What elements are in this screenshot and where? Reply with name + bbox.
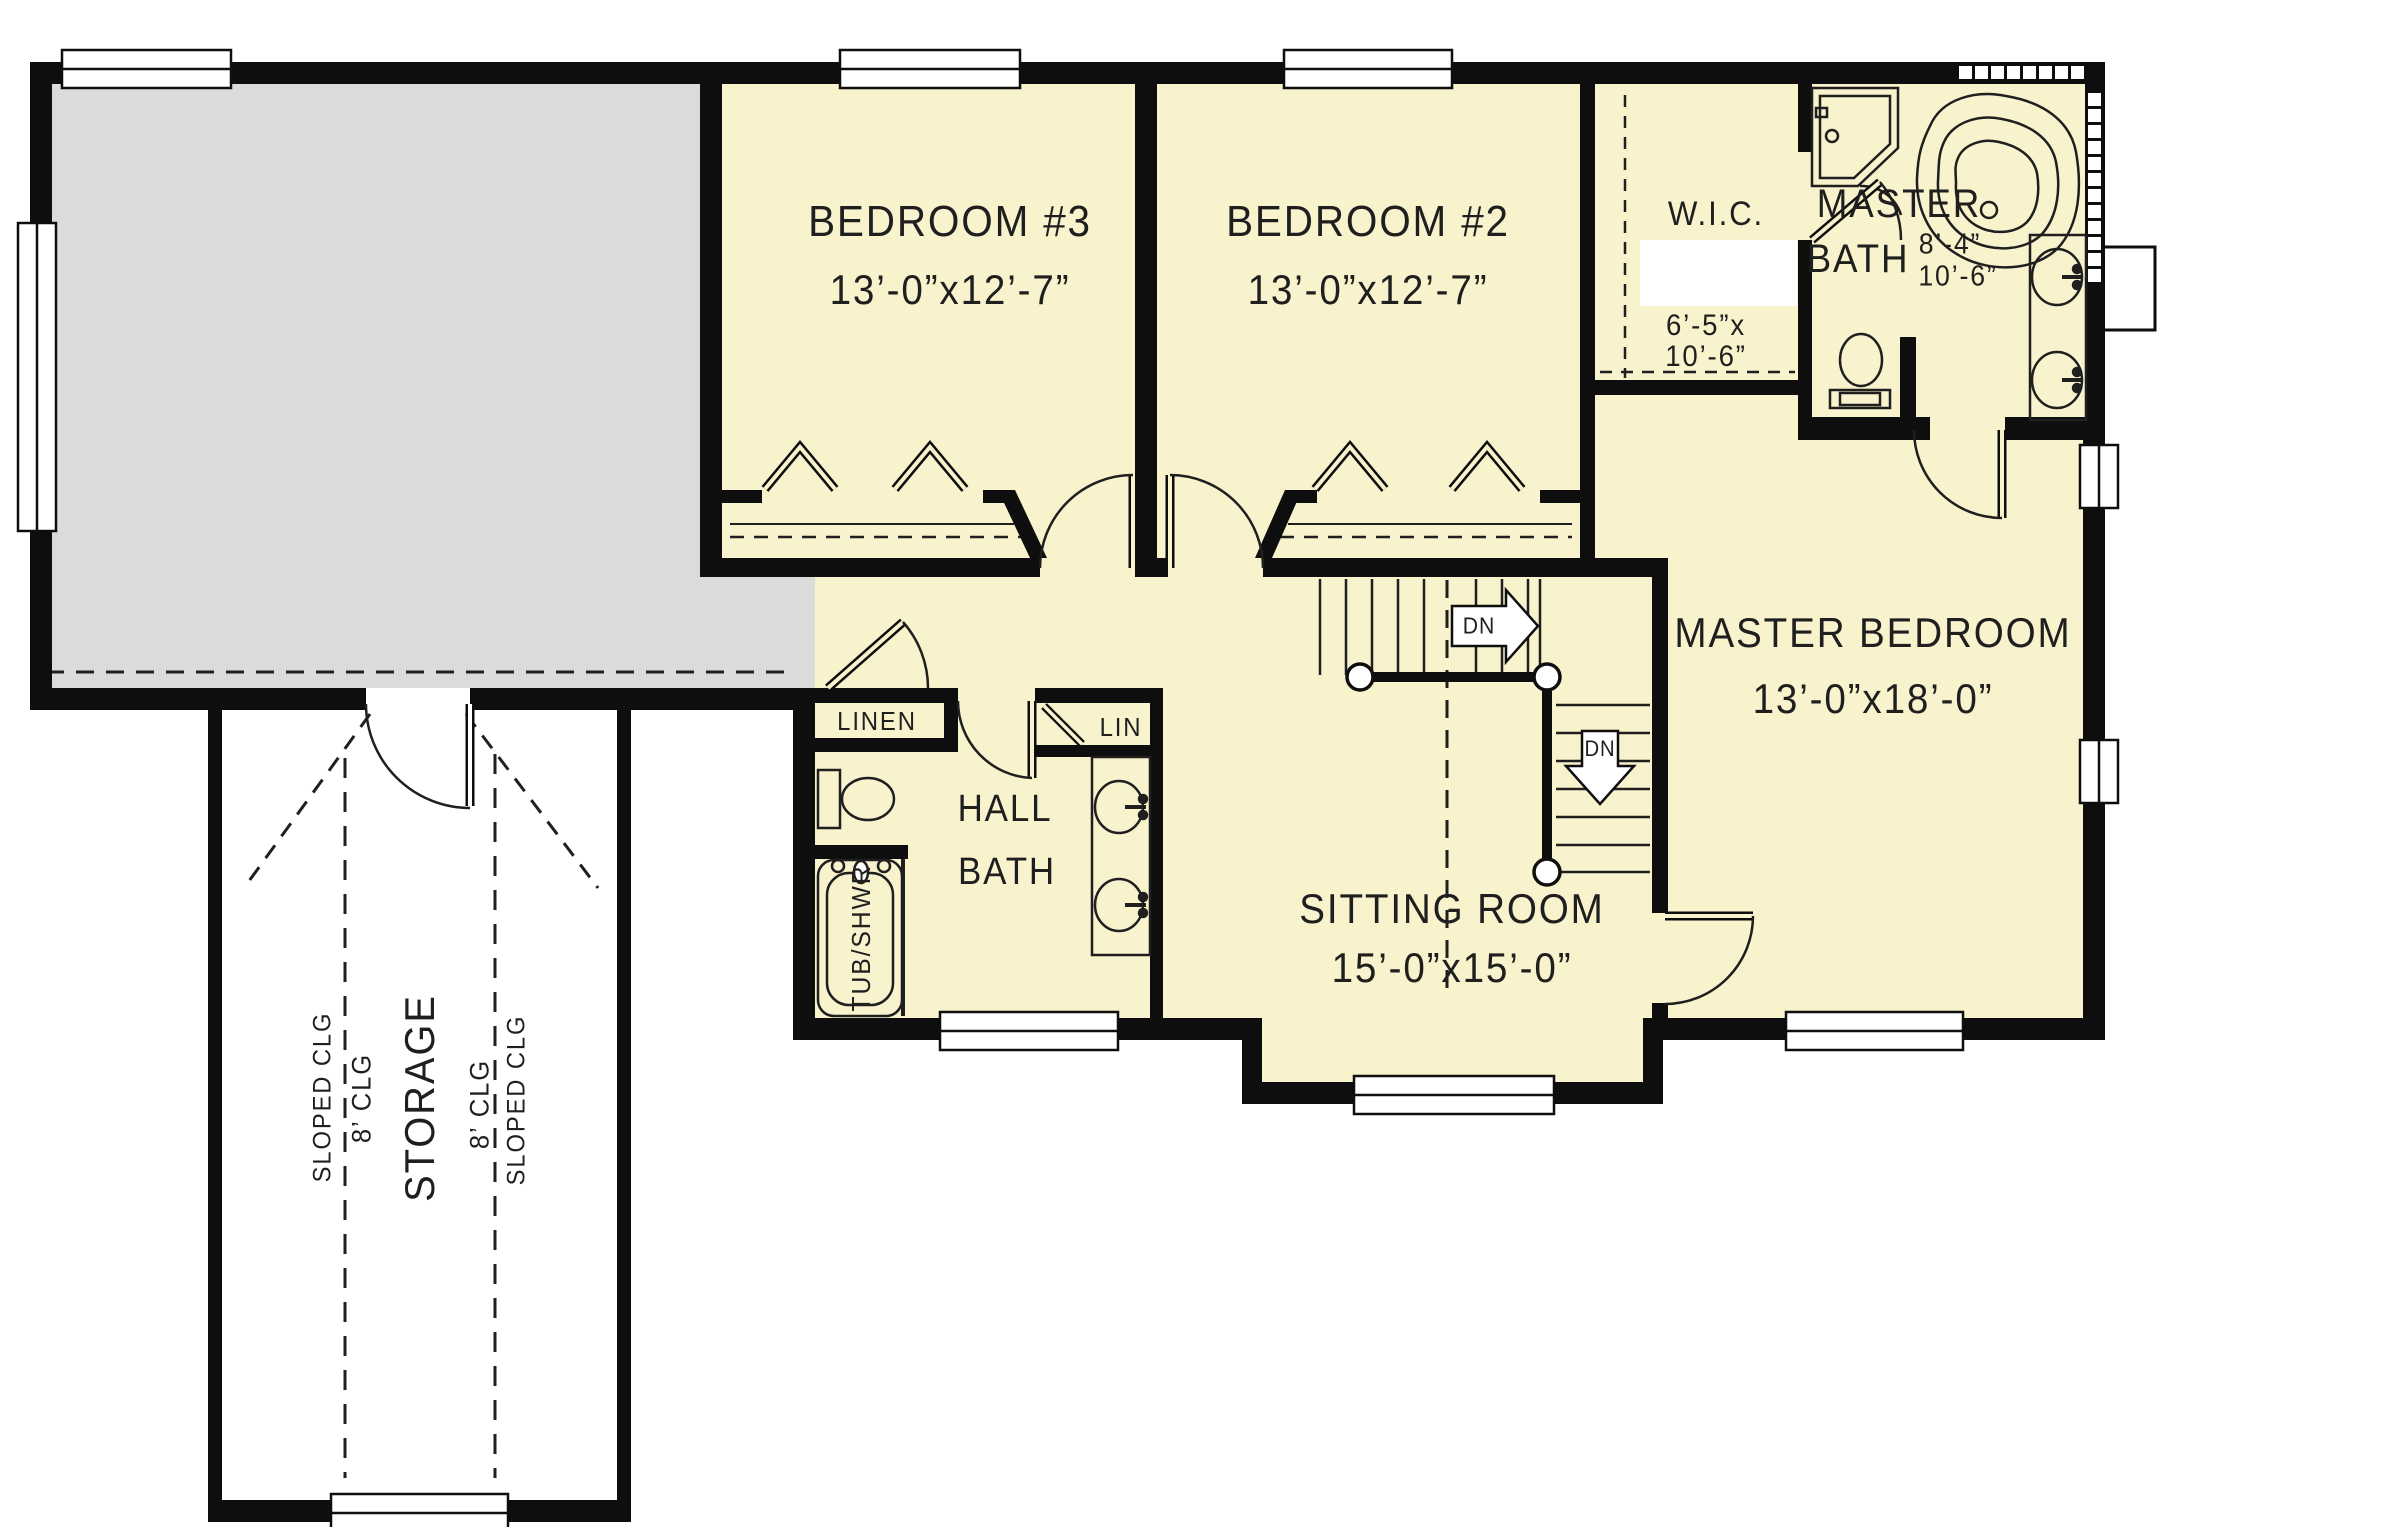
- wall-lin-top: [1035, 688, 1160, 703]
- label-sitting-name: SITTING ROOM: [1299, 888, 1604, 930]
- floorplan-drawing: [0, 0, 2400, 1527]
- wall-bedrooms-bottom-1: [700, 558, 1040, 577]
- label-masterbath-name2: BATH: [1807, 239, 1910, 279]
- wall-closet2-front-right: [1540, 490, 1580, 503]
- label-masterbath-name1: MASTER: [1817, 184, 1981, 224]
- label-tub-shwr: TUB/SHWR: [848, 865, 874, 1012]
- label-masterbath-dims2: 10’-6”: [1918, 263, 1997, 292]
- floor-plan: BEDROOM #3 13’-0”x12’-7” BEDROOM #2 13’-…: [0, 0, 2400, 1527]
- label-dn-lower: DN: [1584, 738, 1615, 760]
- door-storage: [366, 704, 470, 808]
- label-sloped-clg-right: SLOPED CLG: [505, 1015, 530, 1186]
- wall-storage-left: [208, 710, 222, 1522]
- label-bedroom2-dims: 13’-0”x12’-7”: [1248, 269, 1489, 311]
- wall-hallbath-right: [1150, 688, 1163, 1040]
- wall-closet3-front-left: [722, 490, 762, 503]
- label-dn-upper: DN: [1463, 615, 1495, 638]
- glass-block-right: [2087, 92, 2102, 283]
- label-bedroom3-name: BEDROOM #3: [808, 200, 1092, 244]
- window-master-bottom: [1786, 1012, 1963, 1050]
- wall-bedrooms-bottom-2: [1135, 558, 1168, 577]
- wall-bedrooms-divider: [1135, 62, 1157, 577]
- bedrooms-floor: [700, 62, 2105, 577]
- label-bedroom3-dims: 13’-0”x12’-7”: [830, 269, 1071, 311]
- window-master-right-2: [2080, 740, 2118, 803]
- wall-lin-bottom: [1035, 745, 1160, 757]
- label-linen: LINEN: [837, 708, 917, 734]
- label-wic-name: W.I.C.: [1668, 197, 1764, 231]
- wall-bedroom3-left: [700, 62, 722, 577]
- wall-attic-bottom-left: [30, 688, 366, 710]
- window-attic-top: [62, 50, 231, 88]
- window-bedroom2: [1284, 50, 1452, 88]
- glass-block-top: [1958, 65, 2085, 80]
- label-8clg-left: 8’ CLG: [349, 1053, 376, 1143]
- wall-linen-bottom: [815, 738, 958, 752]
- wall-linen-right: [944, 703, 958, 738]
- wall-attic-bottom-right: [470, 688, 815, 710]
- storage-slope-diagonals: [244, 714, 598, 888]
- wall-mbath-bottom-left: [1810, 417, 1930, 440]
- wall-bay-right: [1643, 1018, 1663, 1104]
- wall-toilet-stub: [1900, 337, 1916, 417]
- wall-top: [30, 62, 2105, 84]
- label-wic-dims2: 10’-6”: [1665, 342, 1747, 372]
- wic-blank-patch: [1640, 240, 1797, 306]
- wall-wic-right-upper: [1798, 84, 1812, 152]
- wall-sitting-master-upper: [1652, 558, 1668, 913]
- window-bay: [1354, 1076, 1554, 1114]
- window-master-right-1: [2080, 445, 2118, 508]
- label-masterbath-dims1: 8’-4”: [1919, 231, 1982, 260]
- label-masterbedroom-name: MASTER BEDROOM: [1674, 612, 2071, 654]
- wall-bedroom2-right: [1580, 62, 1595, 577]
- window-attic-left: [18, 223, 56, 531]
- wall-bedrooms-bottom-3: [1263, 558, 1668, 577]
- attic-area: [30, 62, 722, 688]
- wall-hallbath-left: [793, 688, 815, 1040]
- label-hallbath-name2: BATH: [958, 853, 1056, 891]
- label-storage: STORAGE: [399, 994, 441, 1202]
- label-sloped-clg-left: SLOPED CLG: [311, 1012, 336, 1183]
- label-bedroom2-name: BEDROOM #2: [1226, 200, 1510, 244]
- label-hallbath-name1: HALL: [958, 790, 1053, 828]
- wall-storage-right: [617, 710, 631, 1522]
- label-wic-dims1: 6’-5”x: [1666, 311, 1746, 341]
- chimney-bumpout: [2105, 247, 2155, 330]
- label-lin: LIN: [1100, 714, 1143, 740]
- window-bedroom3: [840, 50, 1020, 88]
- window-storage: [331, 1494, 508, 1527]
- label-8clg-right: 8’ CLG: [467, 1059, 494, 1149]
- label-masterbedroom-dims: 13’-0”x18’-0”: [1753, 678, 1994, 720]
- wall-tub-divider: [793, 845, 908, 859]
- label-sitting-dims: 15’-0”x15’-0”: [1332, 947, 1573, 989]
- wall-linen-top: [815, 688, 958, 703]
- wall-wic-bottom: [1595, 380, 1810, 395]
- window-hallbath: [940, 1012, 1118, 1050]
